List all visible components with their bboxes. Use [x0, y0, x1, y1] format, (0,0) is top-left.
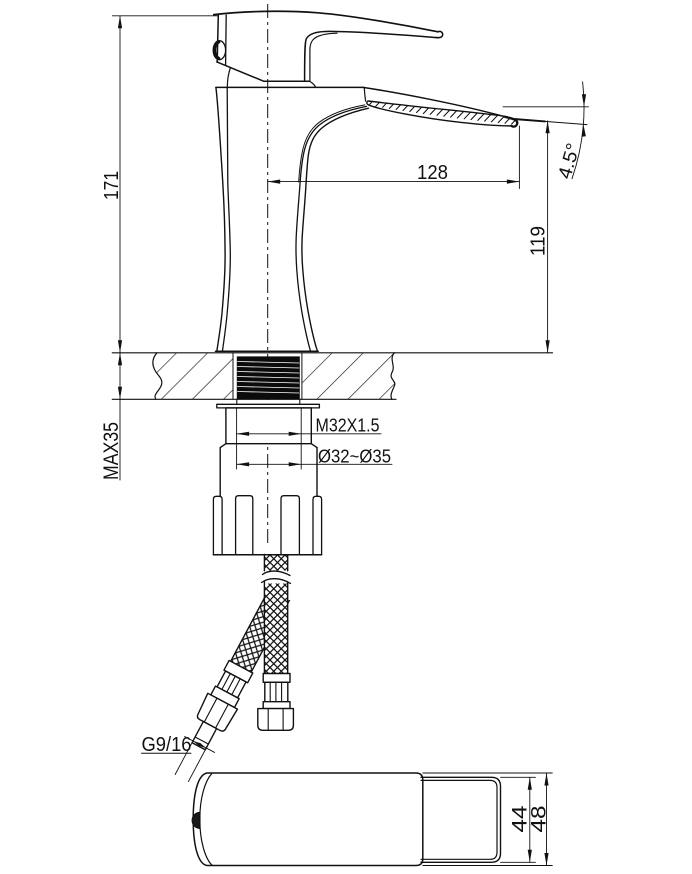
svg-text:MAX35: MAX35: [100, 422, 123, 480]
svg-text:G9/16: G9/16: [142, 733, 192, 756]
svg-text:48: 48: [528, 806, 551, 833]
svg-text:119: 119: [527, 226, 550, 256]
svg-text:Ø32~Ø35: Ø32~Ø35: [318, 445, 391, 466]
svg-text:171: 171: [100, 171, 123, 200]
svg-text:M32X1.5: M32X1.5: [316, 415, 380, 436]
svg-text:128: 128: [417, 161, 448, 184]
